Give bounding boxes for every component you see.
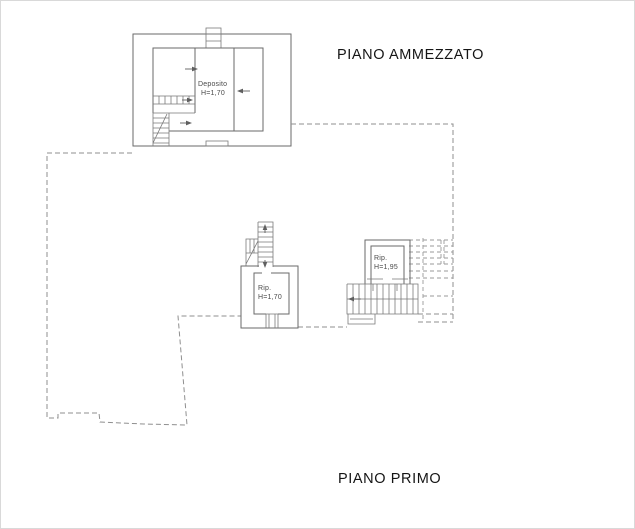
chimney-divisions xyxy=(206,34,221,41)
arrow-down-icon xyxy=(263,262,268,268)
first-floor-title: PIANO PRIMO xyxy=(338,471,441,487)
middle-chimney xyxy=(266,314,278,328)
rip-right-room-walls xyxy=(365,240,410,284)
rip-right-height-label: H=1,95 xyxy=(374,264,398,271)
door-arrow-stairs-lower xyxy=(180,121,192,126)
chimney xyxy=(206,28,221,48)
door-arrow-deposito-right xyxy=(237,89,250,94)
mezzanine-floor-title: PIANO AMMEZZATO xyxy=(337,47,484,63)
floor-plan-canvas: Deposito H=1,70 xyxy=(0,0,635,529)
rip-middle-height-label: H=1,70 xyxy=(258,294,282,301)
arrow-left-icon xyxy=(237,89,243,94)
hidden-stairs-dashed-grid xyxy=(409,238,453,322)
middle-stairs-annex xyxy=(246,239,258,266)
rip-right-label: Rip. xyxy=(374,255,387,262)
arrow-right-icon xyxy=(186,121,192,126)
door-arrow-stairs-top xyxy=(182,98,193,103)
dashed-boundary-bottom-right xyxy=(298,314,453,327)
mezzanine-stairs-vertical-run xyxy=(153,113,169,146)
right-staircase-annex xyxy=(348,314,375,324)
floor-plan-drawing: Deposito H=1,70 xyxy=(1,1,635,529)
stairs-down-arrow xyxy=(263,260,268,268)
door-threshold xyxy=(206,141,228,146)
rip-middle-label: Rip. xyxy=(258,285,271,292)
deposito-height-label: H=1,70 xyxy=(201,90,225,97)
first-floor-dashed-outline xyxy=(47,124,453,425)
rip-right-room-feet xyxy=(367,279,408,291)
right-structure-plan: Rip. H=1,95 xyxy=(347,240,418,324)
dashed-boundary-top-right xyxy=(291,124,453,322)
dashed-boundary-left xyxy=(47,153,241,425)
arrow-right-icon xyxy=(187,98,193,103)
arrow-left-icon xyxy=(348,297,354,302)
mezzanine-plan: Deposito H=1,70 xyxy=(133,28,291,146)
middle-structure-plan: Rip. H=1,70 xyxy=(241,222,298,328)
deposito-label: Deposito xyxy=(198,81,227,88)
door-arrow-into-deposito xyxy=(185,67,198,72)
chimney-outline xyxy=(206,28,221,48)
